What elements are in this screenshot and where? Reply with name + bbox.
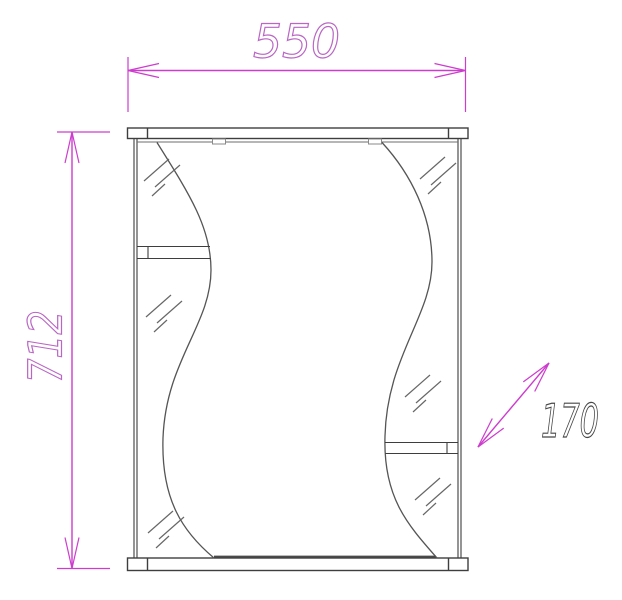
right-shelf: [385, 443, 458, 454]
dimension-linework: [57, 57, 549, 569]
mirror-hatch-middle-right: [405, 375, 441, 412]
depth-dimension: [478, 363, 549, 447]
width-dimension-label: 550: [253, 15, 340, 69]
mirror-hatch-top-left: [144, 159, 180, 196]
top-panel: [128, 128, 469, 139]
door-right-curved-edge: [382, 143, 437, 559]
depth-dimension-line: [478, 363, 549, 447]
height-dimension-label: 712: [19, 310, 73, 383]
bottom-panel: [128, 558, 469, 571]
depth-dimension-label: 170: [541, 394, 599, 448]
cabinet-linework: [128, 128, 469, 571]
hinge-mark-right: [369, 139, 382, 144]
door-left-curved-edge: [157, 143, 214, 559]
left-side-wall: [134, 139, 137, 559]
mirror-hatch-top-right: [420, 157, 456, 194]
hinge-mark-left: [213, 139, 226, 144]
mirror-hatches: [144, 157, 456, 548]
left-shelf: [137, 247, 211, 259]
right-side-wall: [458, 139, 461, 559]
drawing-canvas: 550 712 170: [0, 0, 622, 600]
mirror-hatch-bottom-right: [415, 478, 451, 515]
mirror-hatch-middle-left: [146, 295, 182, 332]
technical-drawing: 550 712 170: [0, 0, 622, 600]
